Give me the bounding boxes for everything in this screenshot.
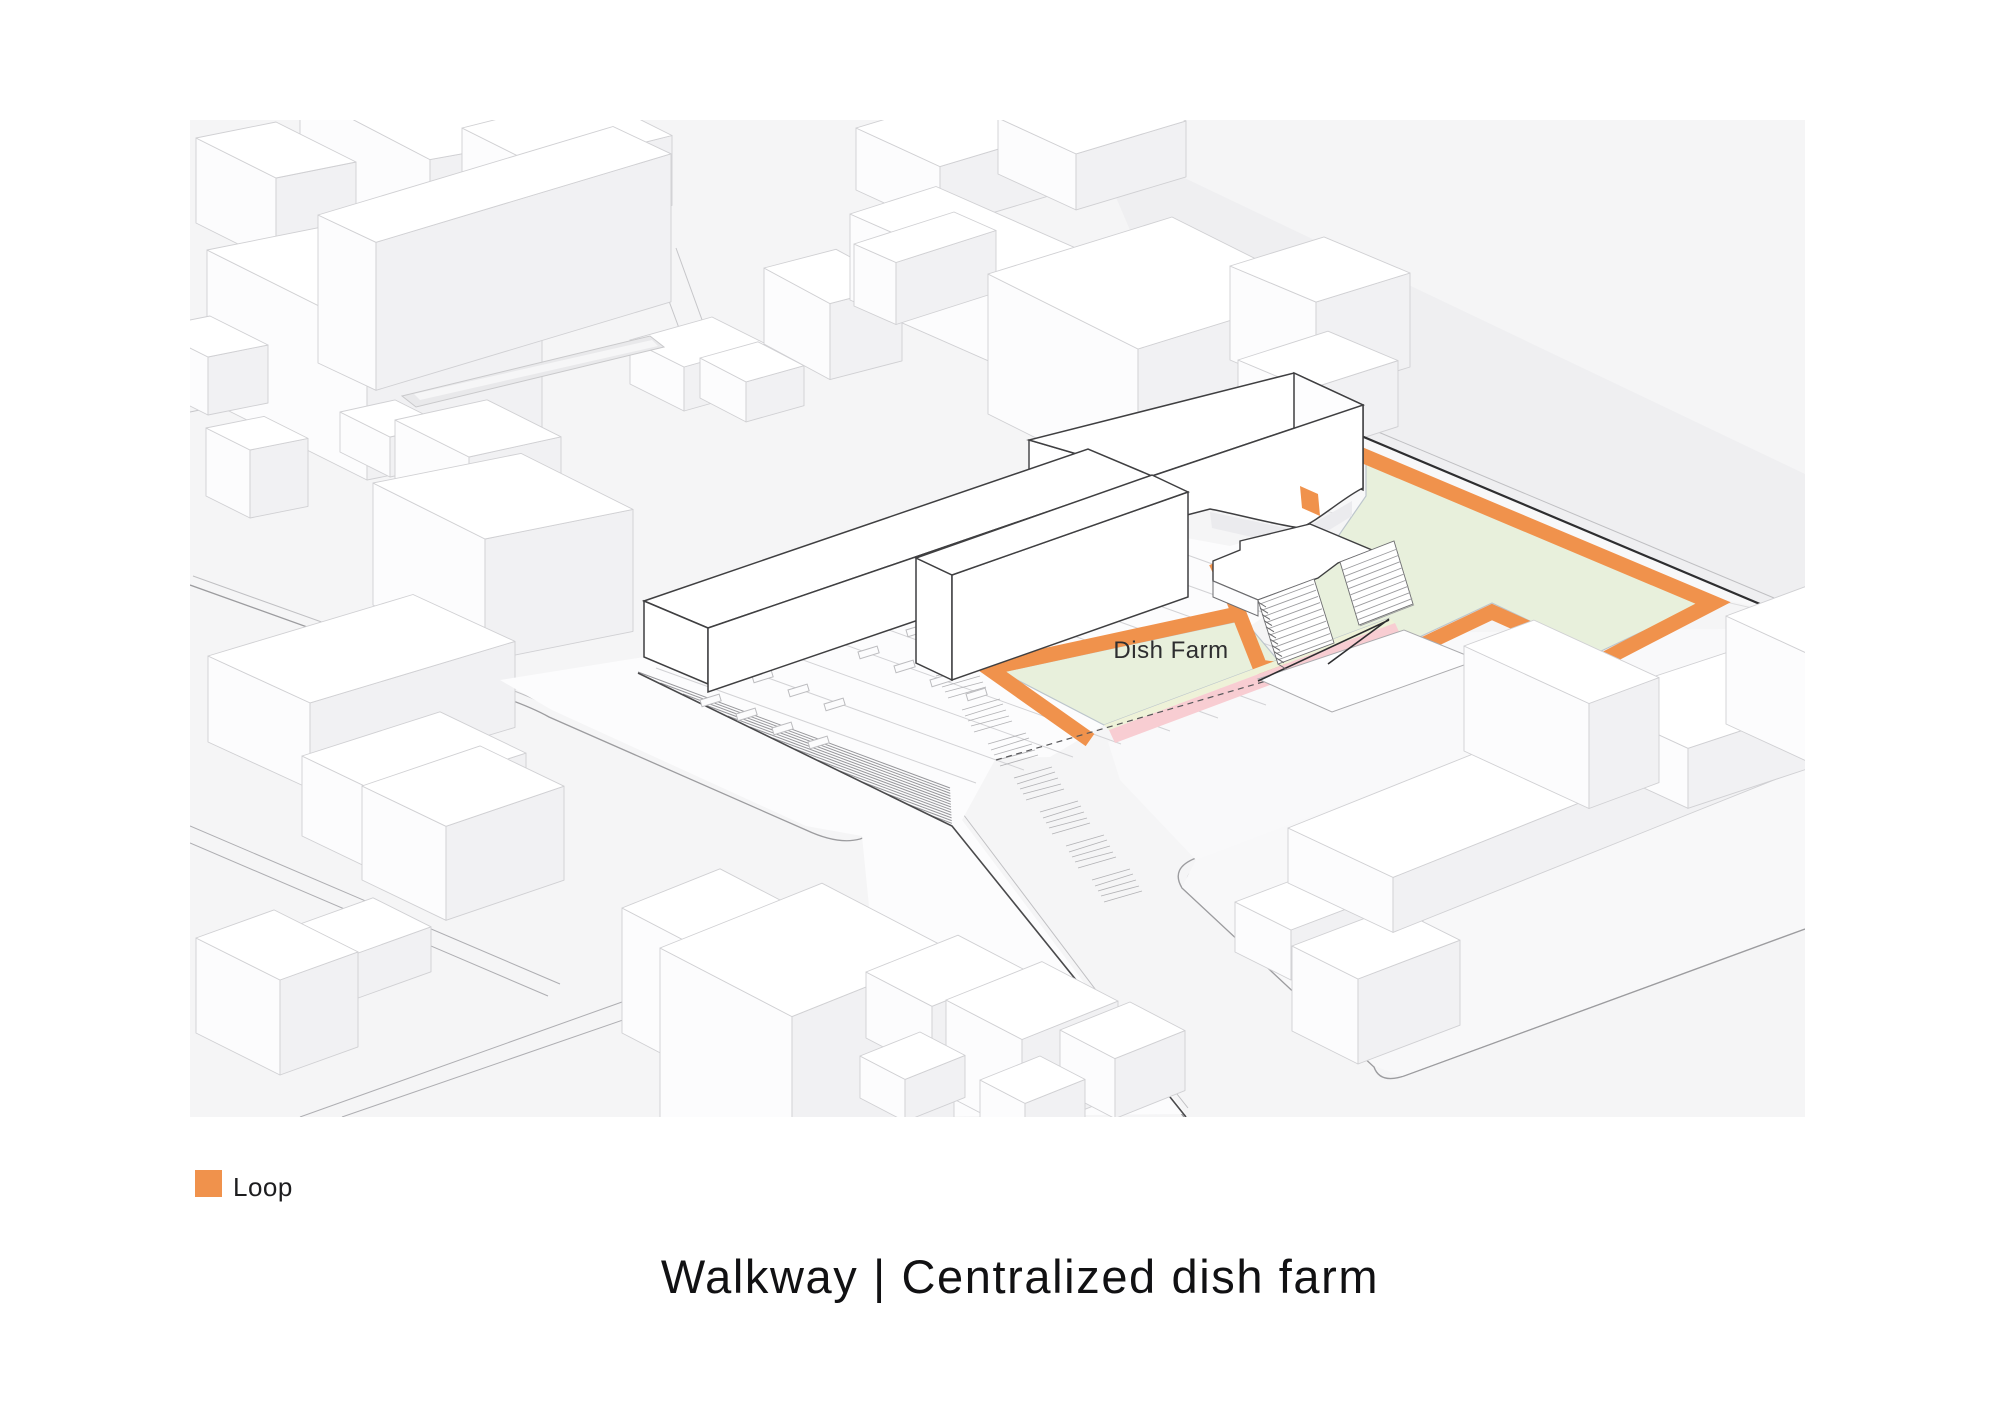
svg-text:Walkway | Centralized dish far: Walkway | Centralized dish farm: [661, 1250, 1379, 1303]
svg-text:Loop: Loop: [233, 1172, 293, 1202]
svg-text:Dish Farm: Dish Farm: [1113, 637, 1228, 664]
